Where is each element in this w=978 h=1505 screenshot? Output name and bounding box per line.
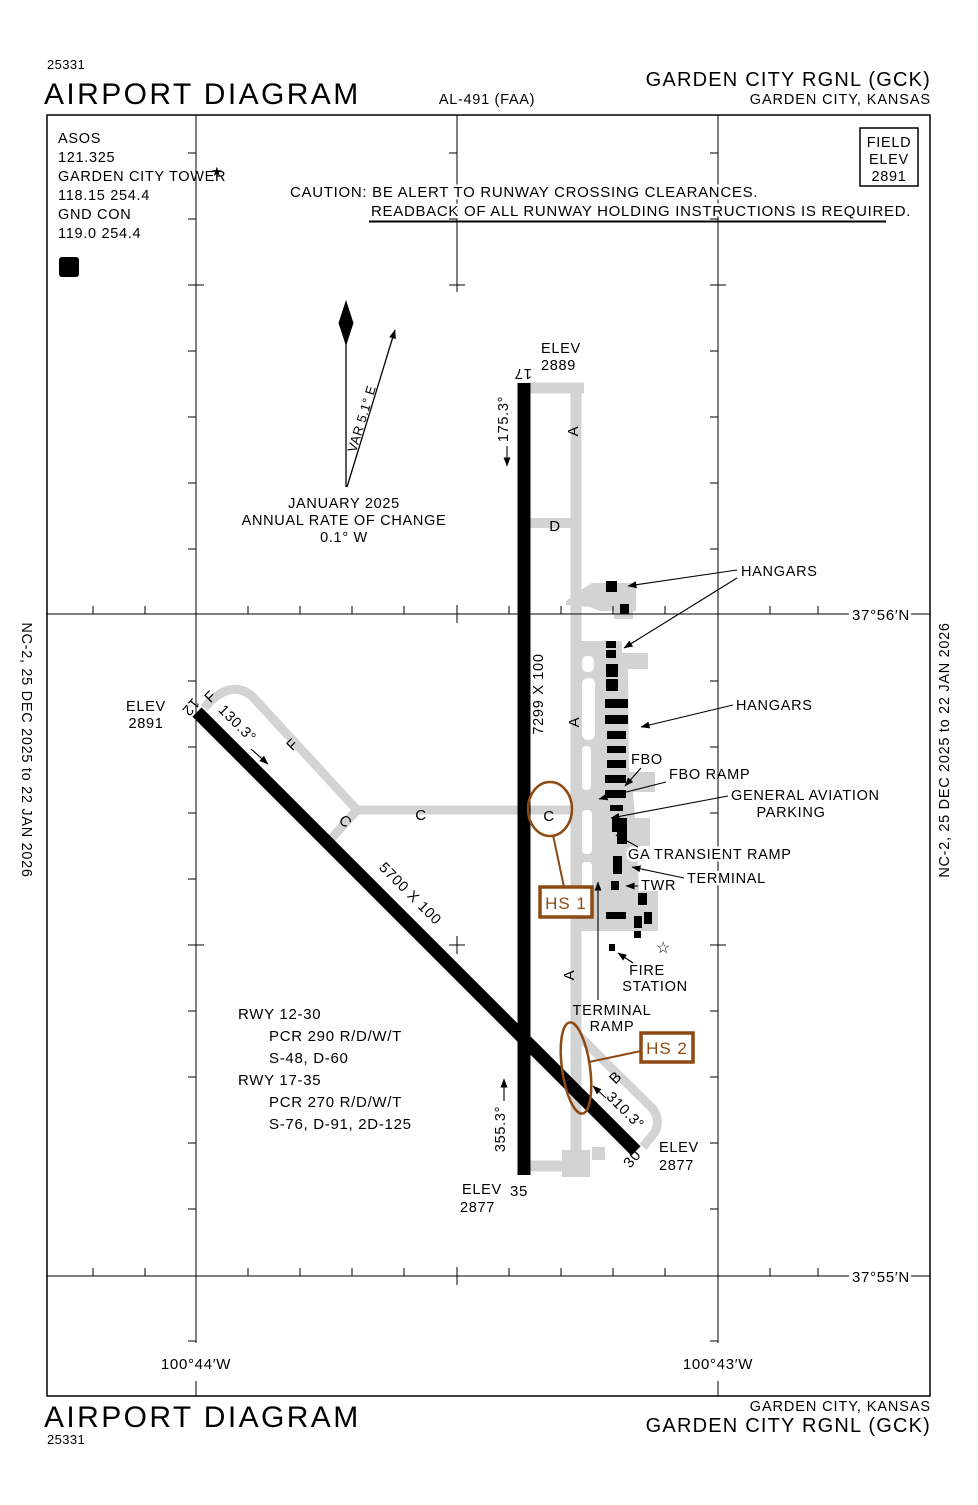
- fbo-label: FBO: [631, 752, 663, 768]
- rwy17-elev-value: 2889: [541, 358, 576, 374]
- field-elev-value: 2891: [871, 169, 906, 185]
- rwy12-elev-value: 2891: [128, 716, 163, 732]
- chart-number-bottom: 25331: [47, 1432, 85, 1447]
- asos-freq: 121.325: [58, 150, 115, 166]
- gnd-con-label: GND CON: [58, 207, 131, 223]
- apron-island-4: [582, 810, 592, 854]
- gnd-con-freq: 119.0 254.4: [58, 226, 141, 242]
- hangars-mid-label: HANGARS: [736, 698, 813, 714]
- hangar-building: [605, 715, 628, 724]
- edition-left: NC-2, 25 DEC 2025 to 22 JAN 2026: [18, 622, 34, 877]
- hangars-north-label: HANGARS: [741, 564, 818, 580]
- hangar-building: [606, 641, 616, 648]
- rwy30-elev-label: ELEV: [659, 1140, 699, 1156]
- asos-label: ASOS: [58, 131, 101, 147]
- hangar-building: [607, 760, 626, 768]
- tower-star-icon: ★: [211, 164, 223, 179]
- airport-diagram-page: 25331 AIRPORT DIAGRAM AL-491 (FAA) GARDE…: [0, 0, 978, 1500]
- tower-building: [611, 881, 619, 890]
- variation-rate2: 0.1° W: [320, 530, 368, 546]
- hangar-building: [607, 746, 626, 753]
- rwy17-heading: 175.3°: [496, 396, 512, 442]
- north-variation: VAR 5.1° E JANUARY 2025 ANNUAL RATE OF C…: [242, 300, 447, 546]
- rwy30-heading-arrow: [593, 1086, 606, 1098]
- airport-diagram-chart: 25331 AIRPORT DIAGRAM AL-491 (FAA) GARDE…: [0, 0, 978, 1500]
- rwy35-heading: 355.3°: [493, 1106, 509, 1152]
- hs1-label: HS 1: [545, 894, 587, 913]
- ga-parking-label-2: PARKING: [756, 805, 825, 821]
- airport-city-top: GARDEN CITY, KANSAS: [750, 92, 931, 108]
- apron-island-2: [582, 678, 595, 740]
- apron-island-3: [582, 746, 591, 790]
- airport-name-bottom: GARDEN CITY RGNL (GCK): [646, 1415, 931, 1437]
- hs2-label: HS 2: [646, 1039, 688, 1058]
- rwy17-number: 17: [514, 365, 532, 382]
- hangar-building: [606, 581, 617, 592]
- rwy1230-pcr: PCR 290 R/D/W/T: [269, 1028, 402, 1045]
- caution-line2: READBACK OF ALL RUNWAY HOLDING INSTRUCTI…: [371, 203, 911, 220]
- hangar-building: [606, 650, 616, 658]
- delta-symbol: D: [64, 260, 75, 276]
- variation-label: VAR 5.1° E: [344, 384, 378, 454]
- lat-label-top: 37°56′N: [852, 607, 910, 624]
- page-title: AIRPORT DIAGRAM: [44, 78, 361, 111]
- taxiway-a-label-3: A: [561, 970, 578, 981]
- taxiway-d-label: D: [549, 518, 561, 535]
- page-title-bottom: AIRPORT DIAGRAM: [44, 1401, 361, 1434]
- apron-building: [634, 916, 642, 928]
- tower-label: GARDEN CITY TOWER: [58, 169, 226, 185]
- airport-city-bottom: GARDEN CITY, KANSAS: [750, 1399, 931, 1415]
- fire-station-building: [609, 944, 615, 951]
- variation-rate1: ANNUAL RATE OF CHANGE: [242, 513, 447, 529]
- taxiway-c-label-2: C: [415, 807, 427, 824]
- fbo-ramp-label: FBO RAMP: [669, 767, 750, 783]
- tower-freq: 118.15 254.4: [58, 188, 150, 204]
- terminal-ramp-label-1: TERMINAL: [573, 1003, 652, 1019]
- rwy1230-codes: S-48, D-60: [269, 1050, 349, 1067]
- apron-island-1: [582, 656, 594, 672]
- rwy17-elev-label: ELEV: [541, 341, 581, 357]
- lon-label-right: 100°43′W: [683, 1356, 753, 1373]
- field-elev-box: FIELD ELEV 2891: [860, 128, 918, 186]
- taxiway-c-label-1: C: [543, 808, 555, 825]
- hs1-leader: [553, 835, 564, 887]
- fire-station-label-1: FIRE: [629, 963, 665, 979]
- hangar-building: [606, 664, 618, 677]
- rwy12-elev-label: ELEV: [126, 699, 166, 715]
- beacon-star-icon: ☆: [656, 940, 671, 957]
- variation-date: JANUARY 2025: [288, 496, 400, 512]
- hangar-building: [605, 699, 628, 708]
- terminal-building: [613, 856, 622, 874]
- rwy1735-dimensions: 7299 X 100: [531, 653, 547, 734]
- graticule-ticks: [93, 153, 818, 1341]
- field-elev-line2: ELEV: [869, 152, 909, 168]
- comm-info: ASOS 121.325 GARDEN CITY TOWER ★ 118.15 …: [58, 131, 226, 277]
- fbo-building: [605, 775, 626, 783]
- rwy30-number: 30: [620, 1147, 645, 1172]
- rwy1735-pcr: PCR 270 R/D/W/T: [269, 1094, 402, 1111]
- apron-building: [610, 805, 623, 811]
- rwy35-elev-label: ELEV: [462, 1182, 502, 1198]
- rwy35-number: 35: [510, 1183, 528, 1200]
- terminal-label: TERMINAL: [687, 871, 766, 887]
- south-ramp-patch: [562, 1150, 590, 1177]
- rwy30-elev-value: 2877: [659, 1158, 694, 1174]
- apron-building: [644, 912, 652, 924]
- runway-data-block: RWY 12-30 PCR 290 R/D/W/T S-48, D-60 RWY…: [238, 1006, 412, 1133]
- chart-number-top: 25331: [47, 57, 85, 72]
- fire-station-label-2: STATION: [622, 979, 688, 995]
- twr-label: TWR: [641, 878, 676, 894]
- hangars-north-leader-1: [628, 570, 737, 586]
- al-number: AL-491 (FAA): [439, 92, 535, 108]
- terminal-ramp-label-2: RAMP: [590, 1019, 635, 1035]
- ga-parking-label-1: GENERAL AVIATION: [731, 788, 880, 804]
- apron-building: [638, 893, 647, 905]
- taxiway-a-label-2: A: [566, 717, 583, 728]
- rwy35-elev-value: 2877: [460, 1200, 495, 1216]
- hangars-north-leader-2: [624, 578, 737, 648]
- south-ramp-notch: [592, 1147, 605, 1160]
- edition-right: NC-2, 25 DEC 2025 to 22 JAN 2026: [937, 622, 953, 877]
- lat-label-bottom: 37°55′N: [852, 1269, 910, 1286]
- hangar-building: [607, 731, 626, 739]
- apron-building: [634, 931, 641, 938]
- north-arrow-icon: [339, 300, 354, 346]
- apron-building: [606, 912, 626, 919]
- fire-station-leader: [618, 953, 633, 963]
- hangars-mid-leader: [641, 705, 733, 727]
- terminal-leader: [632, 867, 684, 878]
- hangar-building: [620, 604, 629, 614]
- rwy1735-codes: S-76, D-91, 2D-125: [269, 1116, 412, 1133]
- rwy1230-data-title: RWY 12-30: [238, 1006, 321, 1023]
- lon-label-left: 100°44′W: [161, 1356, 231, 1373]
- rwy1735-data-title: RWY 17-35: [238, 1072, 321, 1089]
- caution-line1: CAUTION: BE ALERT TO RUNWAY CROSSING CLE…: [290, 184, 758, 201]
- ga-transient-label: GA TRANSIENT RAMP: [628, 847, 792, 863]
- field-elev-line1: FIELD: [867, 135, 912, 151]
- taxiway-a-label-1: A: [565, 426, 582, 437]
- airport-name-top: GARDEN CITY RGNL (GCK): [646, 69, 931, 91]
- hangar-building: [606, 679, 618, 691]
